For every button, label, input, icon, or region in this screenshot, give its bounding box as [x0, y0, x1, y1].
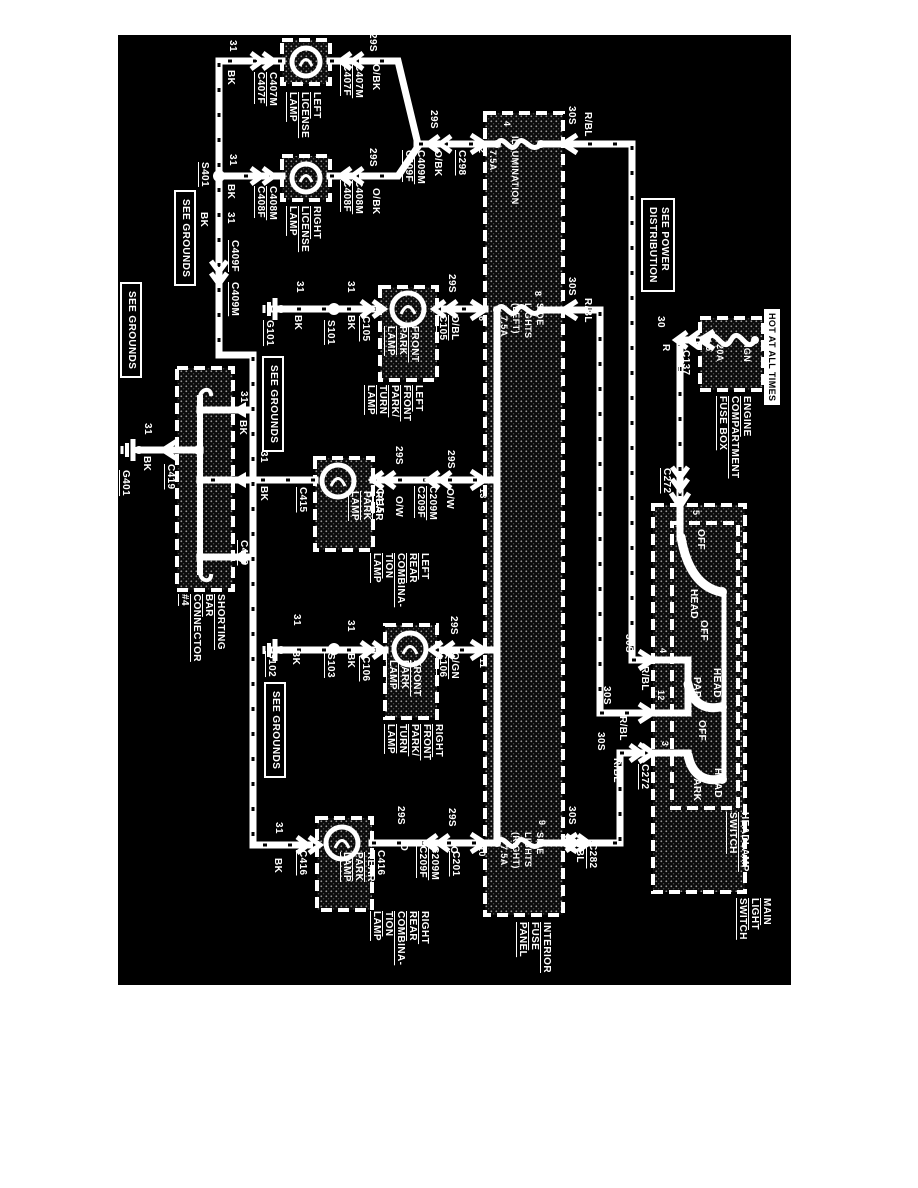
hot-at-all-times: HOT AT ALL TIMES	[764, 309, 780, 405]
sw-pin-3: 3	[659, 741, 671, 746]
wire-31-s103: 31	[344, 620, 356, 632]
sw3-off: OFF	[695, 720, 707, 741]
conn-c409-pair-merge: C409M C409F	[402, 150, 426, 184]
left-rear-comb-label: LEFT REAR COMBINA- TION LAMP	[370, 553, 430, 607]
wire-31-s101: 31	[344, 281, 356, 293]
sw-pin-12: 12	[655, 690, 667, 701]
conn-c209-pair-1: C209M C209F	[414, 486, 438, 520]
splice-s103-label: S103	[324, 653, 336, 678]
conn-obl-c105: O/BL C105	[436, 315, 460, 341]
splice-s101-label: S101	[324, 320, 336, 345]
fuse-ign-amp: 20A	[714, 344, 726, 362]
sw3-park: PARK	[690, 772, 702, 801]
fp-pin-10: 10	[476, 846, 488, 857]
main-light-switch-label: MAIN LIGHT SWITCH	[736, 898, 772, 940]
wire-bk-g102: BK	[289, 650, 301, 665]
wire-31-left-license: 31	[226, 40, 238, 52]
wire-rbl-pin4: R/BL	[581, 112, 593, 137]
wire-29s-c415a: 29S	[392, 446, 404, 465]
fuse-illumination-amp: 7.5A	[487, 150, 499, 171]
fp-pin-11: 11	[477, 658, 489, 668]
left-front-park-turn-label: LEFT FRONT PARK/ TURN LAMP	[364, 385, 424, 421]
fuse-side-lights-left-amp: 7.5A	[498, 316, 510, 337]
wire-bk-c416: BK	[271, 858, 283, 873]
wire-bk-left-license: BK	[224, 70, 236, 85]
wire-bk-right-license: BK	[224, 184, 236, 199]
conn-c209-pair-2: C209M C209F	[416, 846, 440, 880]
wire-29s-c416b: 29S	[445, 808, 457, 827]
wire-rbl-sw3: R/BL	[610, 758, 622, 783]
front-park-lamp-2-label: FRONT PARK LAMP	[386, 660, 422, 696]
wire-29s-right-license: 29S	[366, 148, 378, 167]
sw2-park: PARK	[690, 677, 702, 706]
ground-g101-label: G101	[263, 320, 275, 346]
splice-s401-label: S401	[198, 162, 210, 187]
sw3-head: HEAD	[711, 768, 723, 798]
shorting-bar-label: SHORTING BAR CONNECTOR #4	[178, 594, 226, 662]
wire-o-c416a: O	[397, 843, 409, 851]
conn-c416-left: C416	[296, 850, 308, 876]
right-rear-comb-label: RIGHT REAR COMBINA- TION LAMP	[370, 911, 430, 965]
fp-pin-6: 6	[476, 316, 488, 321]
see-grounds-3: SEE GROUNDS	[120, 282, 142, 378]
wire-29s-left-license: 29S	[366, 33, 378, 52]
conn-c407-pair-left: C407M C407F	[254, 72, 278, 106]
wire-bk-c415-gnd: BK	[257, 486, 269, 501]
wire-31-g101: 31	[293, 281, 305, 293]
diagram-labels: 31BKC407M C407FLEFT LICENSE LAMPC407M C4…	[0, 0, 918, 1188]
see-grounds-4: SEE GROUNDS	[264, 682, 286, 778]
conn-c416-right: C416	[374, 850, 386, 876]
ground-g401-label: G401	[119, 470, 131, 496]
conn-c407-pair-right: C407M C407F	[340, 64, 364, 98]
wire-obk-merge: O/BK	[431, 150, 443, 177]
interior-fuse-panel-label: INTERIOR FUSE PANEL	[516, 922, 552, 973]
wire-30s-sw3: 30S	[594, 732, 606, 751]
left-license-lamp-label: LEFT LICENSE LAMP	[286, 92, 322, 138]
wire-31-right-license: 31	[226, 154, 238, 166]
wire-29s-c415b: 29S	[444, 450, 456, 469]
wire-29s-c416a: 29S	[394, 806, 406, 825]
fuse-ign: IGN	[741, 345, 753, 362]
conn-c419-exit: C419	[164, 464, 176, 490]
sw1-head: HEAD	[687, 589, 699, 619]
fuse-illumination: ILLUMINATION	[509, 136, 521, 205]
conn-c409m-bus: C409M	[228, 282, 240, 316]
right-license-lamp-label: RIGHT LICENSE LAMP	[286, 206, 322, 252]
fuse-side-lights-right-amp: 7.5A	[498, 845, 510, 866]
wire-rbl-sw12: R/BL	[616, 716, 628, 741]
wire-30-engine: 30	[654, 316, 666, 328]
wire-ow-c415b: O/W	[443, 488, 455, 509]
wire-31-bus: 31	[224, 212, 236, 224]
wire-31-g401: 31	[141, 423, 153, 435]
sw2-head: HEAD	[710, 668, 722, 698]
wire-31-branch1: 31	[237, 391, 249, 403]
conn-c415-left: C415	[296, 487, 308, 513]
fp-pin-4: 4	[501, 121, 513, 126]
sw-pin-4: 4	[657, 648, 669, 653]
wiring-diagram-page: 31BKC407M C407FLEFT LICENSE LAMPC407M C4…	[0, 0, 918, 1188]
wire-rbl-pin8: R/BL	[581, 298, 593, 323]
wire-31-c416: 31	[272, 822, 284, 834]
conn-c298: C298	[455, 150, 467, 176]
headlamp-switch-label: HEADLAMP SWITCH	[726, 812, 750, 872]
wire-r-engine: R	[659, 344, 671, 352]
fuse-side-lights-right: SIDE LIGHTS (RIGHT)	[510, 832, 546, 869]
sw1-off: OFF	[694, 529, 706, 550]
wire-29s-merge: 29S	[427, 110, 439, 129]
see-power-distribution: SEE POWER DISTRIBUTION	[641, 198, 675, 292]
wire-29s-c106: 29S	[447, 616, 459, 635]
conn-c408-pair-right: C408M C408F	[340, 180, 364, 214]
wire-31-g102: 31	[290, 614, 302, 626]
wire-30s-pin4: 30S	[565, 106, 577, 125]
conn-c137: C137	[679, 350, 691, 376]
fp-pin-13: 13	[477, 488, 489, 499]
fp-pin-9: 9	[536, 820, 548, 825]
wire-rbl-sw4: R/BL	[638, 666, 650, 691]
wire-bk-branch1: BK	[236, 420, 248, 435]
wire-29s-c105: 29S	[445, 274, 457, 293]
conn-c201: C201	[449, 851, 461, 877]
wire-30s-sw4: 30S	[622, 634, 634, 653]
engine-fuse-box-label: ENGINE COMPARTMENT FUSE BOX	[716, 396, 752, 479]
rear-park-lamp-2-label: REAR PARK LAMP	[340, 852, 376, 882]
conn-c409f-bus: C409F	[228, 240, 240, 272]
wire-obk-right-license: O/BK	[369, 188, 381, 215]
conn-c415-right: C415	[373, 488, 385, 514]
wire-obk-left-license: O/BK	[369, 64, 381, 91]
fp-pin-8: 8	[532, 291, 544, 296]
ground-g102-label: G102	[265, 651, 277, 677]
see-grounds-2: SEE GROUNDS	[262, 356, 284, 452]
fuse-side-lights-left: SIDE LIGHTS (LEFT)	[510, 303, 546, 338]
wire-bk-s103: BK	[344, 653, 356, 668]
conn-c105-left: C105	[359, 316, 371, 342]
conn-c272-top: C272	[660, 468, 672, 494]
wire-30s-sw12: 30S	[600, 686, 612, 705]
conn-c419-entry: C419	[237, 540, 249, 566]
conn-c106-left: C106	[359, 656, 371, 682]
conn-c282: C282	[586, 843, 598, 869]
sw-pin-5: 5	[690, 510, 702, 515]
wire-30s-pin8: 30S	[565, 277, 577, 296]
front-park-lamp-1-label: FRONT PARK LAMP	[384, 326, 420, 362]
right-front-park-turn-label: RIGHT FRONT PARK/ TURN LAMP	[384, 724, 444, 760]
wire-31-c415-gnd: 31	[257, 451, 269, 463]
wire-bk-g101: BK	[291, 315, 303, 330]
conn-c272-sw3: C272	[638, 764, 650, 790]
wire-30s-pin9: 30S	[565, 806, 577, 825]
wire-ow-c415a: O/W	[392, 496, 404, 517]
conn-c408-pair-left: C408M C408F	[254, 186, 278, 220]
conn-ogn-c106: O/GN C106	[436, 652, 460, 679]
ef-pin-5: 5	[703, 346, 715, 351]
see-grounds-1: SEE GROUNDS	[174, 190, 196, 286]
wire-bk-bus: BK	[197, 212, 209, 227]
wire-rbl-pin9: R/BL	[573, 838, 585, 863]
sw2-off: OFF	[697, 620, 709, 641]
wire-bk-g401: BK	[140, 456, 152, 471]
wire-bk-s101: BK	[344, 315, 356, 330]
